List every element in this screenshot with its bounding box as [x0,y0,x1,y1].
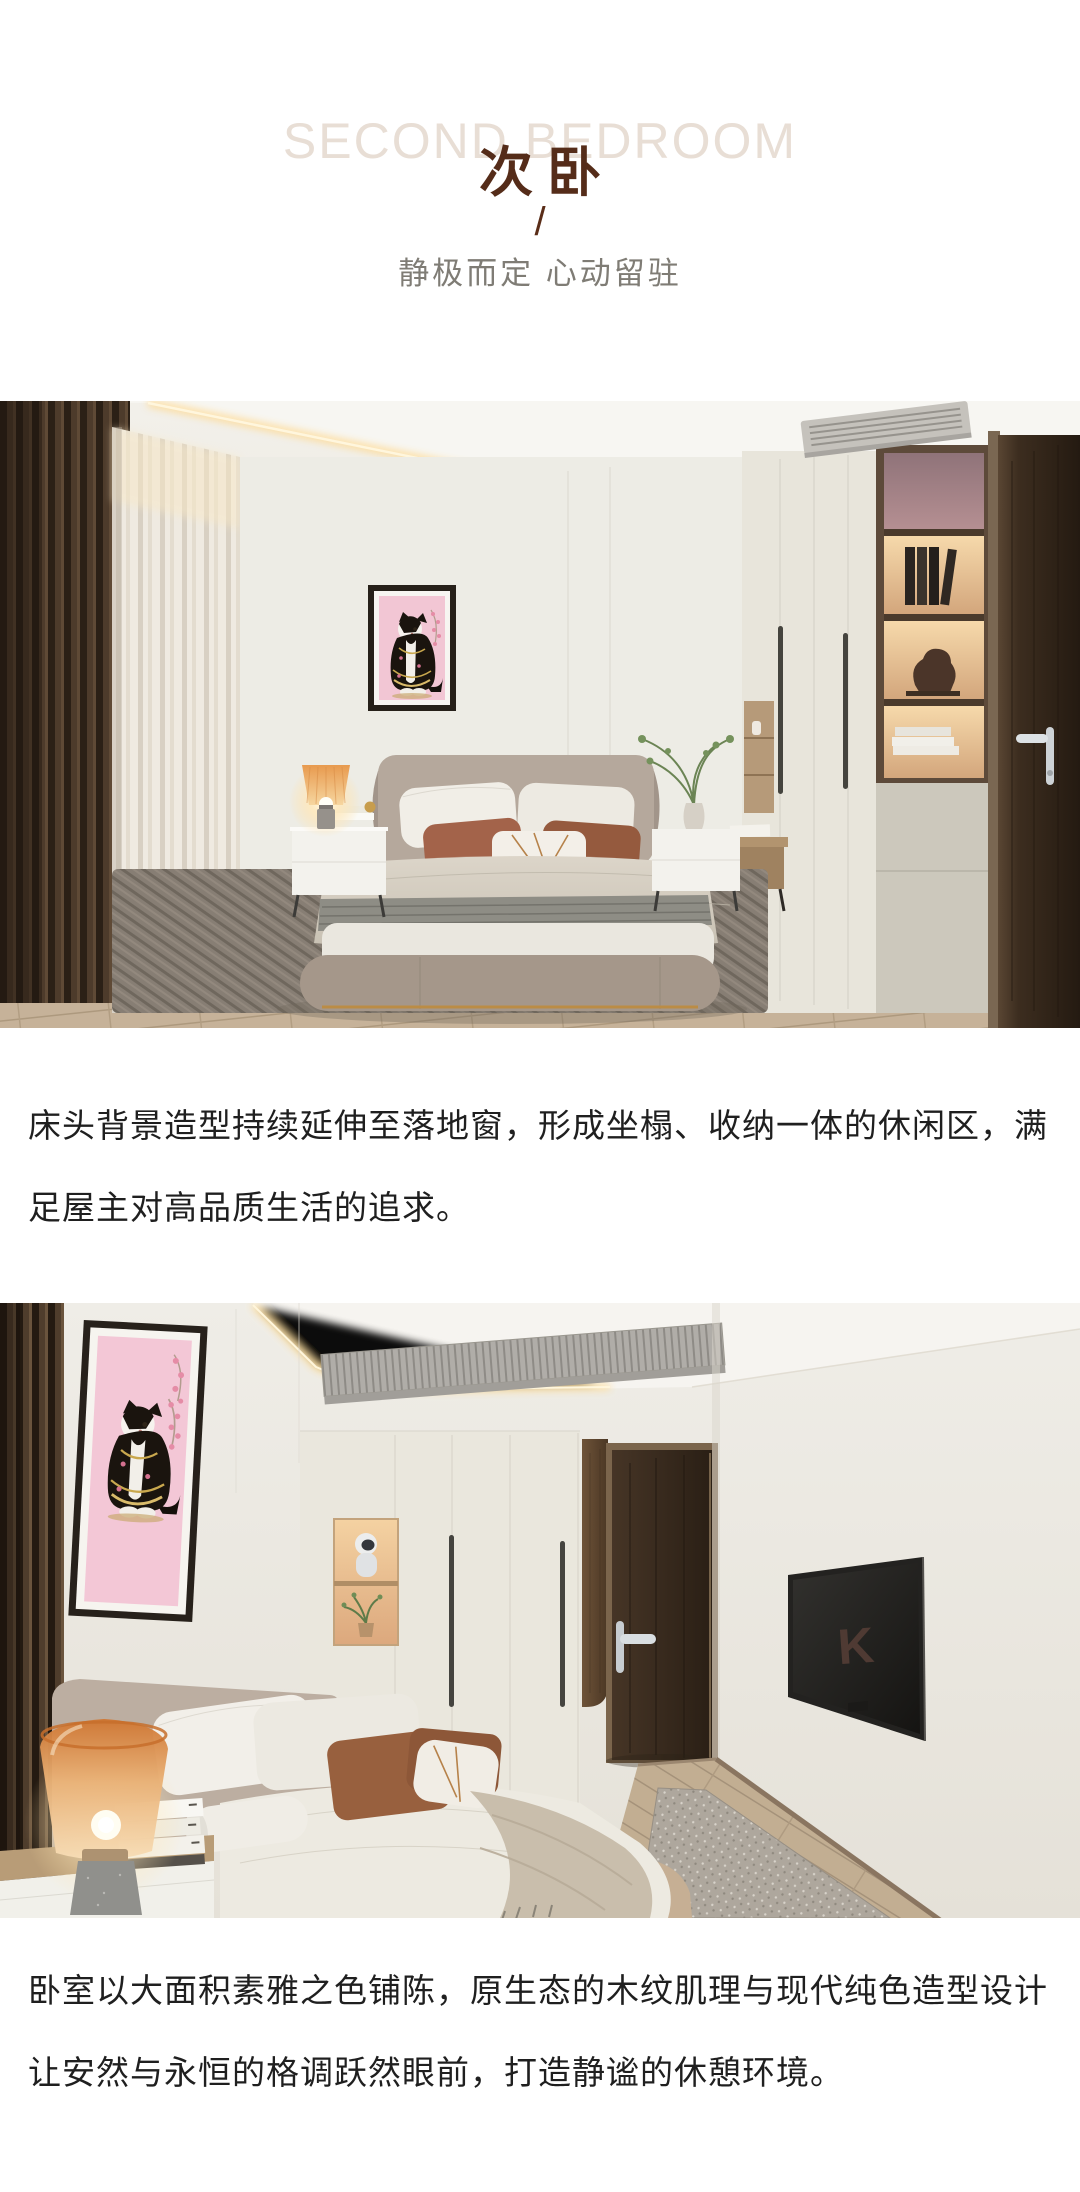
slash-divider: / [0,200,1080,245]
room-door [606,1443,718,1768]
display-shelf [876,445,992,1013]
caption-paragraph-1: 床头背景造型持续延伸至落地窗，形成坐榻、收纳一体的休闲区，满 足屋主对高品质生活… [28,1085,1058,1249]
bedroom-photo-1 [0,401,1080,1028]
gold-ball-decor [365,802,376,813]
walnut-trim-panel [582,1439,608,1707]
shelf-books [905,547,957,605]
room-door [988,431,1080,1028]
caption-paragraph-2: 卧室以大面积素雅之色铺陈，原生态的木纹肌理与现代纯色造型设计 让安然与永恒的格调… [28,1950,1058,2114]
paragraph-line: 足屋主对高品质生活的追求。 [28,1167,1058,1249]
cat-artwork [68,1320,207,1622]
article-page: SECOND BEDROOM 次卧 / 静极而定 心动留驻 [0,0,1080,2192]
paragraph-line: 让安然与永恒的格调跃然眼前，打造静谧的休憩环境。 [28,2032,1058,2114]
tv-logo: K [836,1617,876,1675]
section-subtitle: 静极而定 心动留驻 [0,248,1080,293]
paragraph-line: 床头背景造型持续延伸至落地窗，形成坐榻、收纳一体的休闲区，满 [28,1085,1058,1167]
bedroom-photo-2: K [0,1303,1080,1918]
table-lamp-left [289,765,361,837]
paragraph-line: 卧室以大面积素雅之色铺陈，原生态的木纹肌理与现代纯色造型设计 [28,1950,1058,2032]
page-title: 次卧 [0,128,1080,207]
cat-artwork [368,585,456,711]
